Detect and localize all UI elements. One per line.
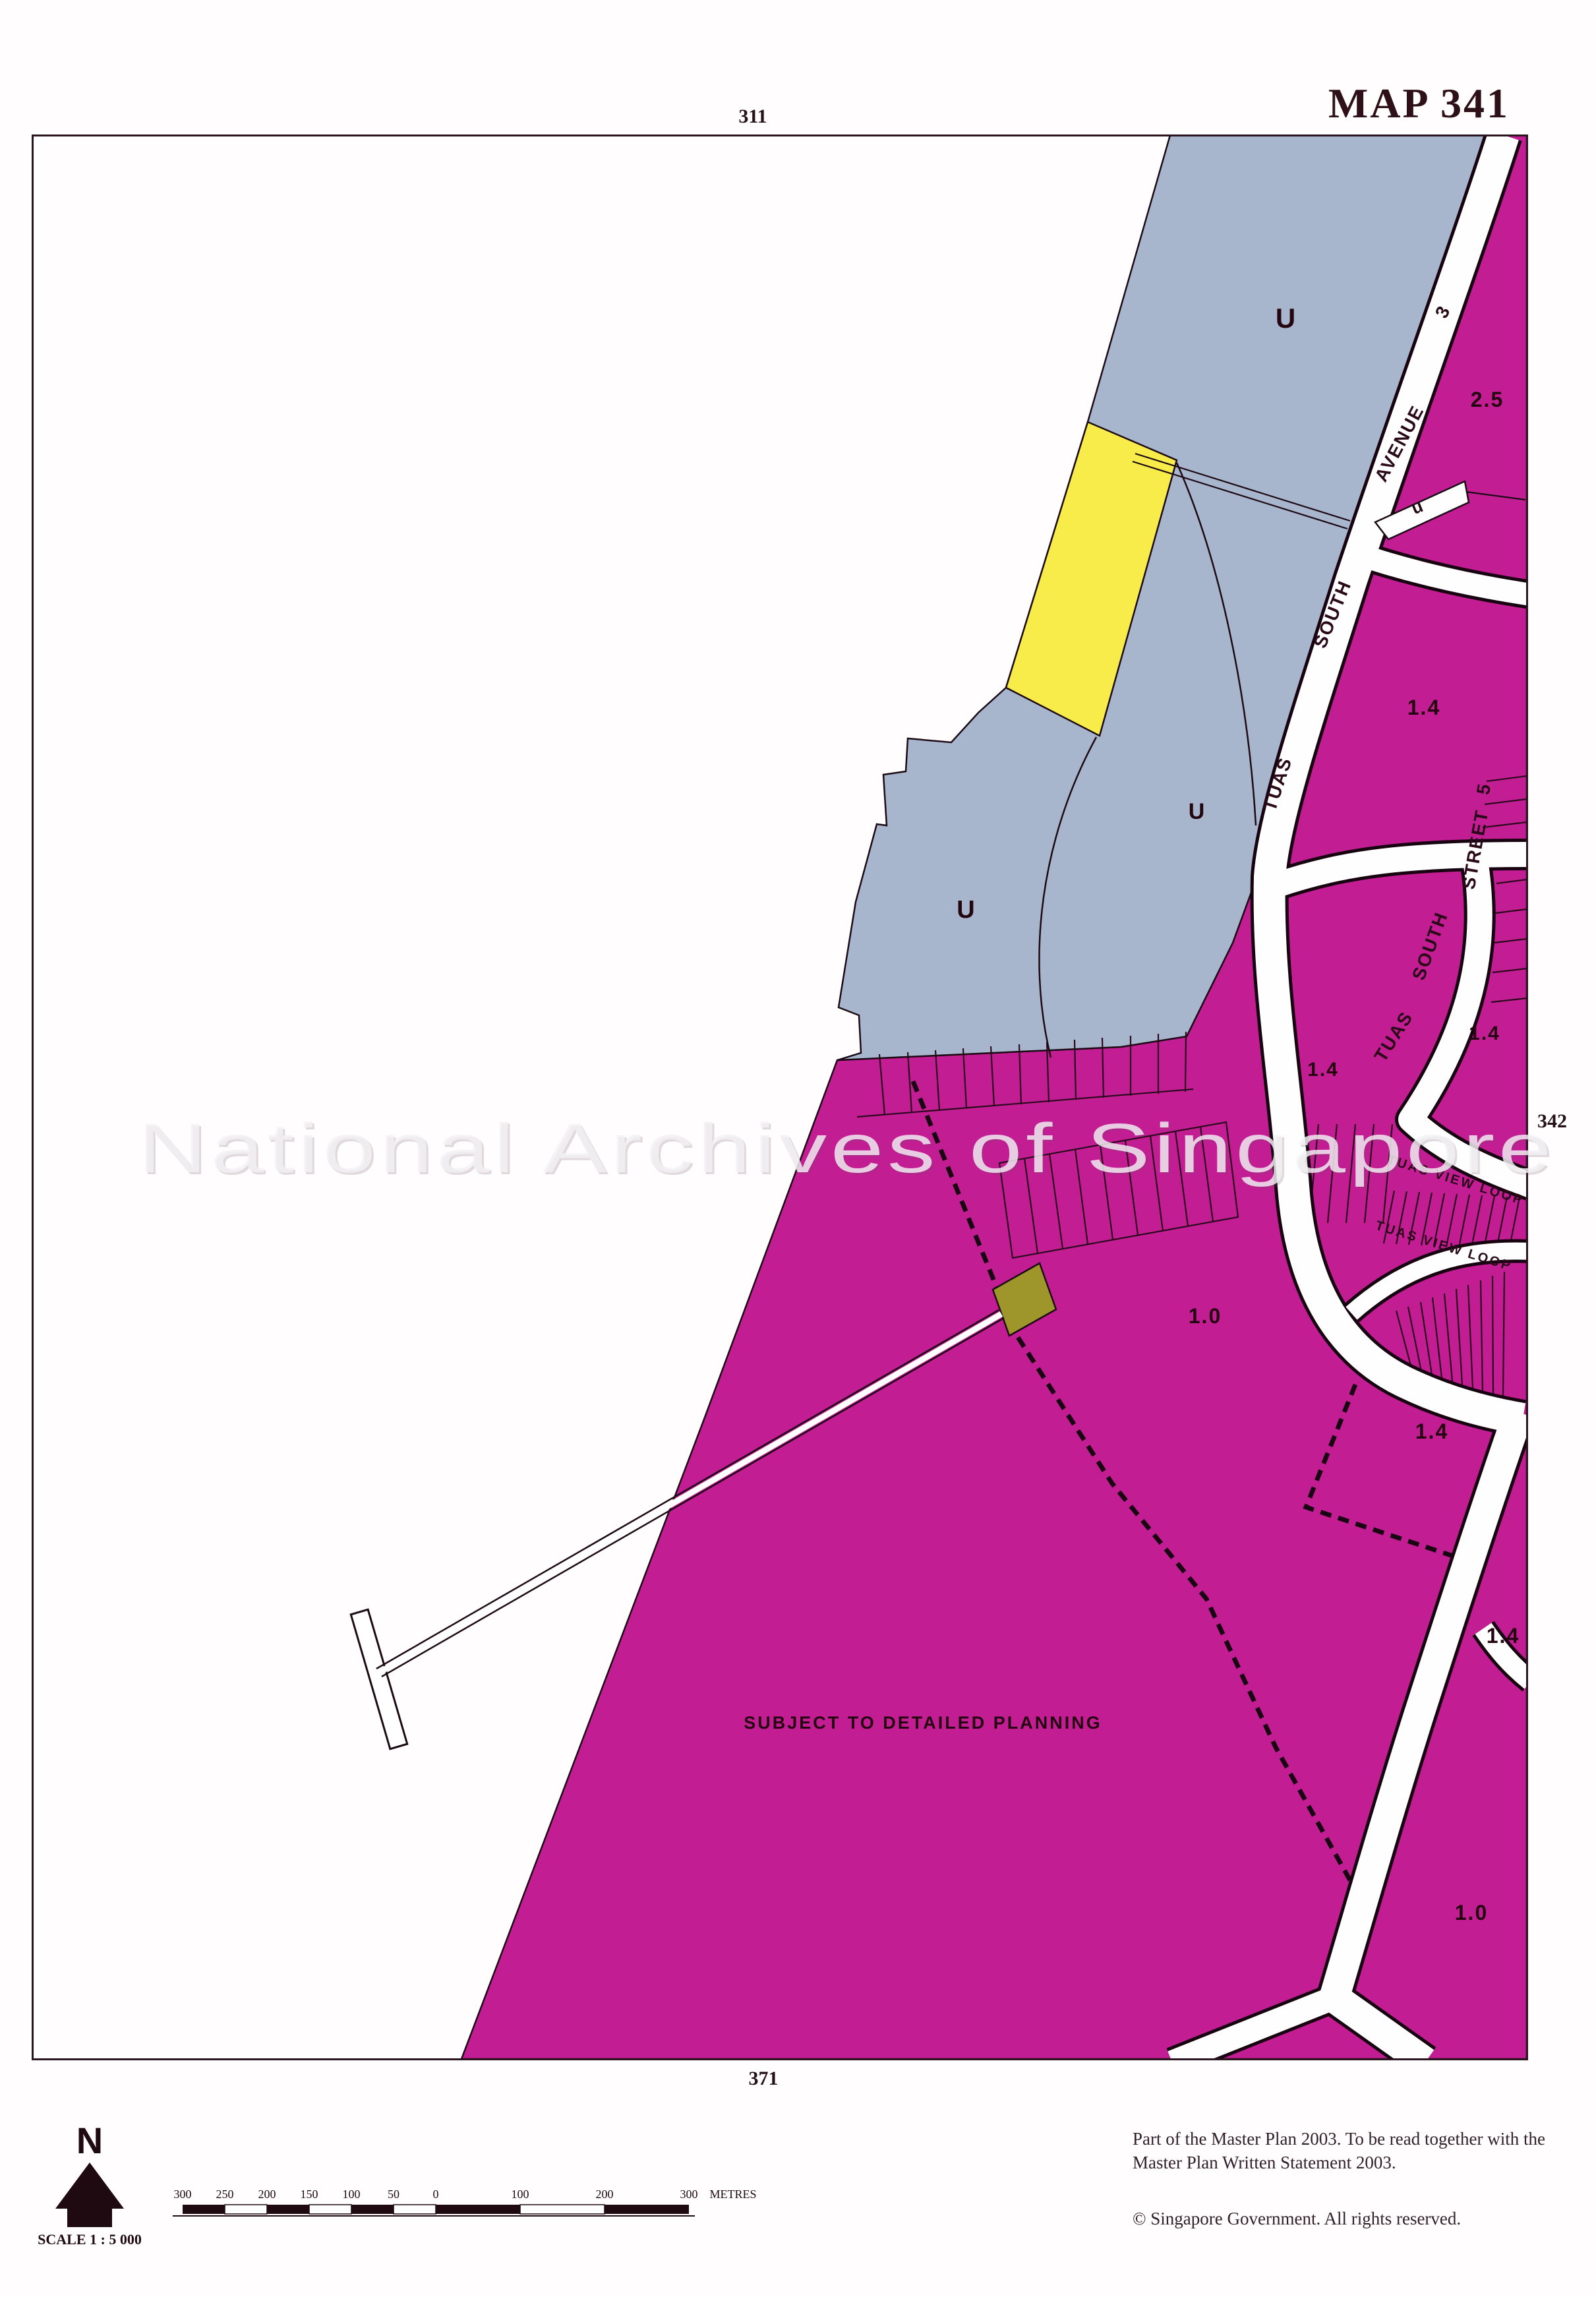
- scale-unit: METRES: [709, 2188, 756, 2201]
- zone-label-1-4-b: 1.4: [1307, 1059, 1339, 1081]
- scale-tick-2: 200: [258, 2188, 276, 2201]
- zone-label-1-0-b: 1.0: [1455, 1901, 1488, 1924]
- zone-label-1-4-a: 1.4: [1407, 696, 1440, 719]
- scale-bar: 300 250 200 150 100 50 0 100 200 300 MET…: [173, 2188, 757, 2216]
- page-title: MAP 341: [1328, 80, 1510, 127]
- scale-tick-7: 100: [512, 2188, 529, 2201]
- scale-tick-1: 250: [216, 2188, 234, 2201]
- scale-tick-5: 50: [388, 2188, 399, 2201]
- note-line-1: Part of the Master Plan 2003. To be read…: [1133, 2129, 1545, 2149]
- svg-text:National Archives of Singapore: National Archives of Singapore: [138, 1110, 1555, 1187]
- north-arrow-icon: [55, 2163, 124, 2227]
- scale-ratio-label: SCALE 1 : 5 000: [38, 2231, 142, 2248]
- zone-label-u-top: U: [1276, 303, 1295, 334]
- zone-label-u-left: U: [957, 896, 974, 924]
- watermark: National Archives of Singapore National …: [138, 1110, 1557, 1189]
- sheet-ref-top: 311: [738, 105, 767, 127]
- scale-tick-4: 100: [343, 2188, 361, 2201]
- sheet-ref-bottom: 371: [749, 2068, 779, 2089]
- zone-label-u-mid: U: [1189, 799, 1205, 824]
- zone-label-1-0-a: 1.0: [1189, 1304, 1222, 1328]
- zone-label-1-4-e: 1.4: [1487, 1624, 1520, 1648]
- copyright-note: © Singapore Government. All rights reser…: [1133, 2209, 1461, 2228]
- zone-label-1-4-d: 1.4: [1415, 1419, 1448, 1443]
- annotation-detailed-planning: SUBJECT TO DETAILED PLANNING: [744, 1713, 1102, 1733]
- master-plan-map-341: MAP 341 311 371 342: [0, 0, 1596, 2297]
- scale-tick-8: 200: [596, 2188, 614, 2201]
- zone-label-2-5: 2.5: [1471, 388, 1504, 411]
- scale-tick-0: 300: [174, 2188, 192, 2201]
- map-sheet-page: MAP 341 311 371 342: [0, 0, 1596, 2297]
- zone-label-1-4-c: 1.4: [1469, 1023, 1500, 1044]
- note-line-2: Master Plan Written Statement 2003.: [1133, 2153, 1396, 2172]
- scale-tick-9: 300: [680, 2188, 698, 2201]
- north-label: N: [76, 2120, 103, 2161]
- scale-tick-6: 0: [433, 2188, 439, 2201]
- scale-tick-3: 150: [301, 2188, 318, 2201]
